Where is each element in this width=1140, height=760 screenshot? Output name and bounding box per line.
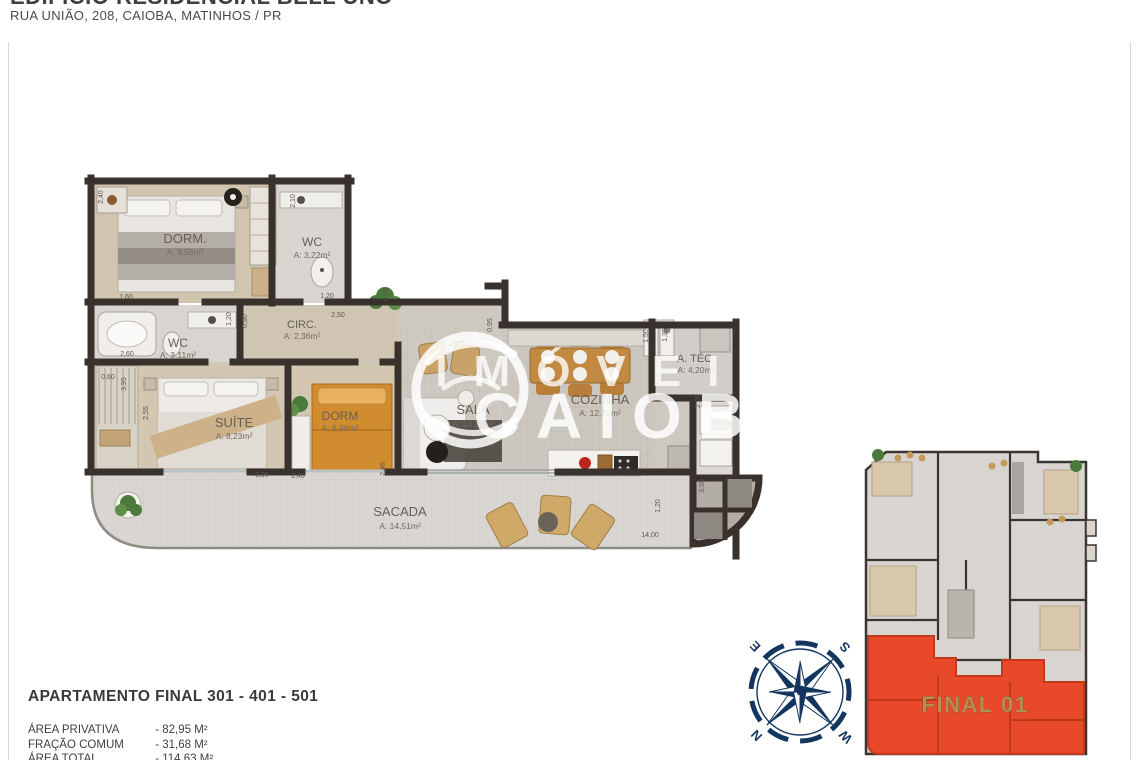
dim: 1,20 [655,499,662,513]
fan-hub [230,194,236,200]
dim: 3,55 [699,479,706,493]
table-row: FRAÇÃO COMUM - 31,68 M² [28,738,213,753]
area-label: ÁREA PRIVATIVA [28,723,152,738]
main-floorplan: DORM. A: 9,56m² WC A: 3,22m² WC A: 3,11m… [88,178,822,556]
dim: 14,00 [641,532,659,539]
label-wc2: WC [168,336,188,350]
apartment-title: APARTAMENTO FINAL 301 - 401 - 501 [28,688,318,706]
plan-canvas: DORM. A: 9,56m² WC A: 3,22m² WC A: 3,11m… [0,0,1140,760]
dim: 2,60 [120,351,134,358]
dim: 2,10 [290,194,297,208]
highlight-label: FINAL 01 [922,692,1029,717]
watermark-line2: CAIOBÁ [474,380,822,452]
area-wc1: A: 3,22m² [294,250,331,260]
area-suite: A: 8,23m² [216,431,253,441]
label-wc1: WC [302,235,322,249]
dim: 2,40 [98,190,105,204]
area-sacada: A: 14,51m² [379,521,421,531]
dim: 0,95 [487,318,494,332]
compass-n: N [748,727,765,744]
dim: 2,50 [331,312,345,319]
compass-s: S [836,638,853,655]
label-dorm2: DORM [322,409,359,423]
dim: 1,50 [643,329,650,343]
dim: 1,35 [662,328,669,342]
dim: 2,46 [380,462,387,476]
table-row: ÁREA PRIVATIVA - 82,95 M² [28,723,213,738]
table-row: ÁREA TOTAL - 114,63 M² [28,752,213,760]
area-label: FRAÇÃO COMUM [28,738,152,753]
area-label: ÁREA TOTAL [28,752,152,760]
label-sacada: SACADA [373,504,427,519]
area-value: - 31,68 M² [155,739,207,751]
compass-w: W [835,727,855,747]
dim: 1,20 [226,312,233,326]
area-circ: A: 2,36m² [284,331,321,341]
dim: 3,06 [255,472,269,479]
overview-keyplan: FINAL 01 [866,449,1096,754]
dim: 0,90 [242,314,249,328]
area-value: - 114,63 M² [155,753,213,760]
dim: 1,20 [320,293,334,300]
label-suite: SUÍTE [215,415,254,430]
dim: 2,55 [143,406,150,420]
suite-closet [96,366,138,470]
area-dorm2: A: 6,96m² [322,423,359,433]
compass-e: E [746,638,763,655]
floorplan-page: EDIFÍCIO RESIDENCIAL BELL UNO RUA UNIÃO,… [0,0,1140,760]
dim: 2,40 [291,473,305,480]
watermark: IMÓVEIS CAIOBÁ [416,336,822,452]
decor-bowl [107,195,117,205]
area-dorm1: A: 9,56m² [167,247,204,257]
dim: 3,95 [121,377,128,391]
label-dorm1: DORM. [163,231,206,246]
area-value: - 82,95 M² [155,724,207,736]
dim: 0,60 [101,374,115,381]
dim: 0,60 [383,287,390,301]
area-wc2: A: 3,11m² [160,350,196,360]
area-table: ÁREA PRIVATIVA - 82,95 M² FRAÇÃO COMUM -… [28,723,213,760]
bed-suite [144,378,282,468]
dim: 1,60 [119,294,133,301]
label-circ: CIRC. [287,319,317,331]
